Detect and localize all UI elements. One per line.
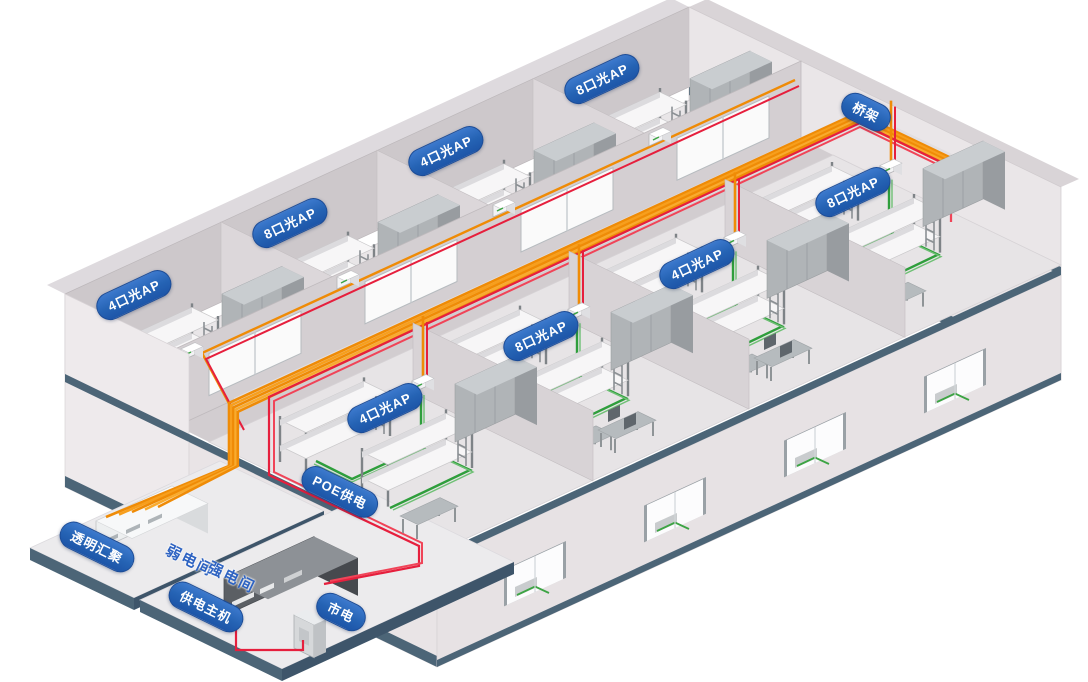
- diagram-stage: 4口光AP 8口光AP 4口光AP 8口光AP 4口光AP 8口光AP 4口光A…: [0, 0, 1088, 682]
